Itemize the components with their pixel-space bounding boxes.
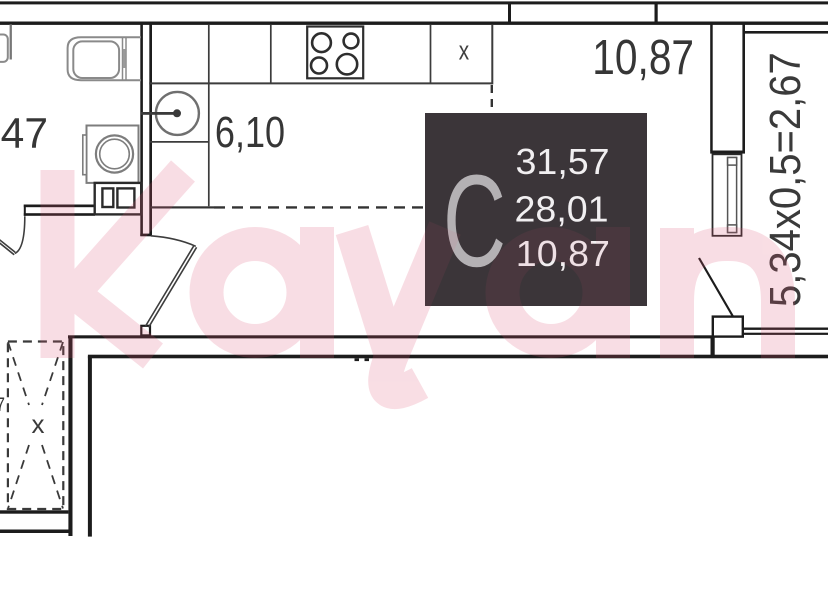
- svg-text:3,47: 3,47: [0, 109, 48, 157]
- svg-text:10,87: 10,87: [592, 30, 694, 85]
- svg-text:28,01: 28,01: [515, 189, 609, 229]
- svg-text:x: x: [459, 36, 470, 65]
- svg-text:x: x: [32, 409, 45, 439]
- svg-text:7: 7: [0, 394, 5, 416]
- svg-text:6,10: 6,10: [215, 109, 285, 157]
- svg-text:31,57: 31,57: [516, 142, 610, 182]
